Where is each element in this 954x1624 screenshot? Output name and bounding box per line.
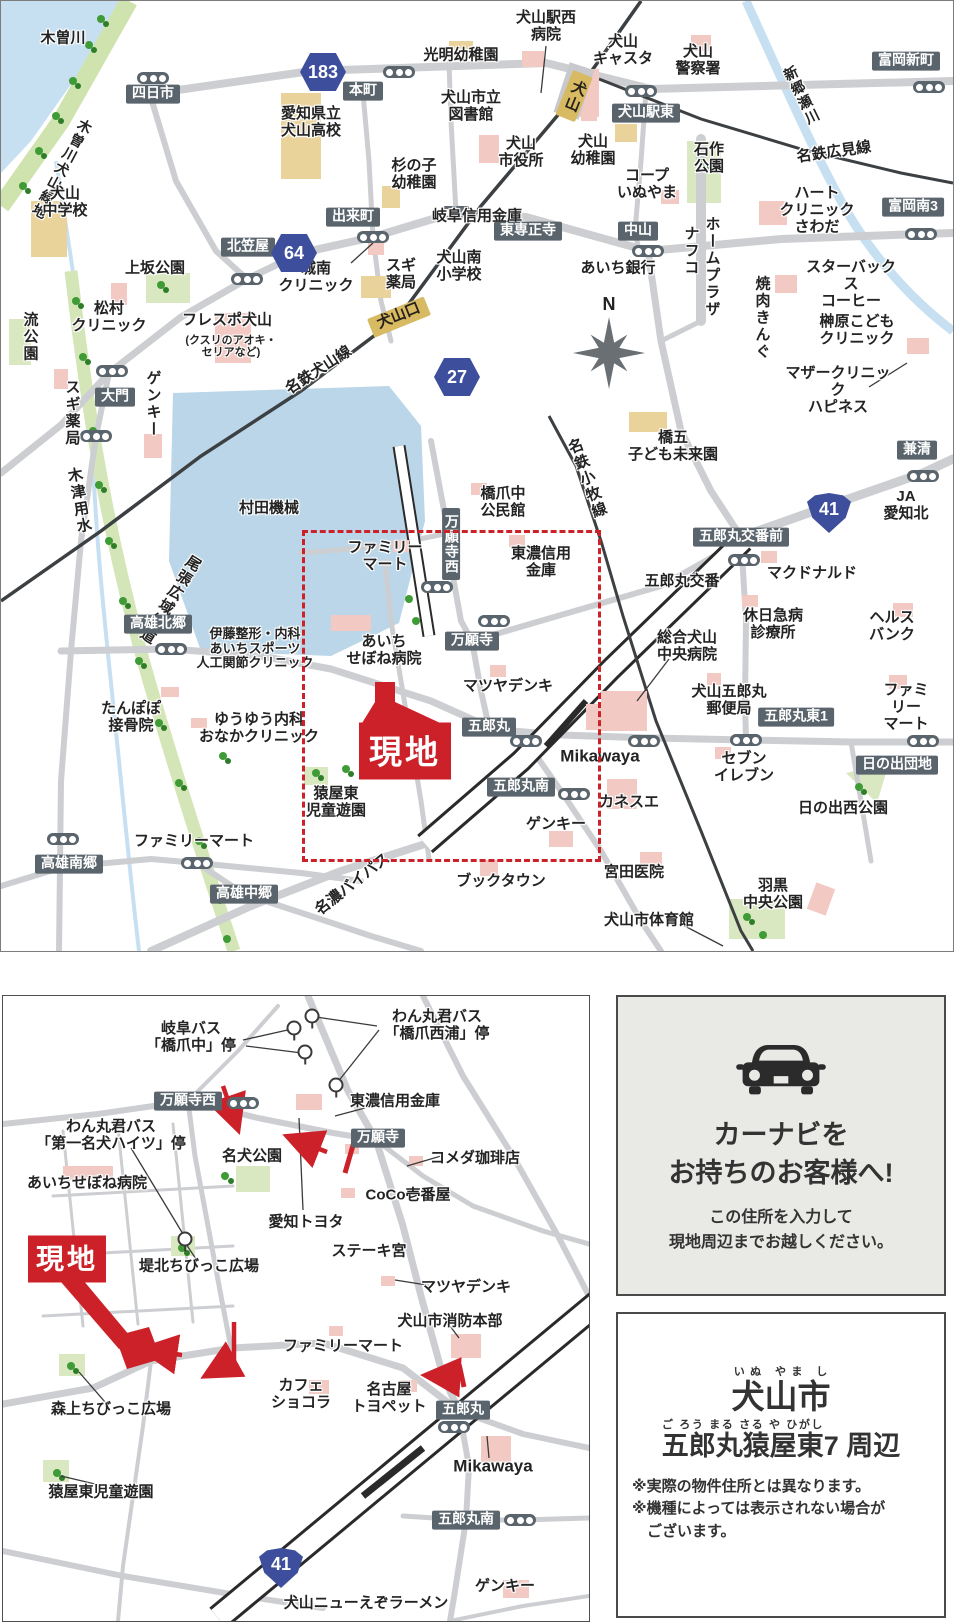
place-label: 焼肉きんぐ xyxy=(753,276,770,361)
station-label: 万願寺 xyxy=(351,1129,405,1148)
station-label: 高雄北郷 xyxy=(124,615,192,634)
station-label: 犬山駅東 xyxy=(612,104,680,123)
place-label: スギ薬局 xyxy=(63,379,80,447)
station-label: 東専正寺 xyxy=(494,222,562,241)
traffic-signal-icon xyxy=(155,643,187,655)
place-label: 犬山市体育館 xyxy=(604,913,694,930)
place-label: 東濃信用金庫 xyxy=(350,1094,440,1111)
place-label: ホームプラザ xyxy=(703,216,720,318)
place-label: スギ 薬局 xyxy=(386,258,416,292)
compass-icon xyxy=(572,316,646,390)
station-label: 高雄南郷 xyxy=(35,855,103,874)
place-label: 名犬公園 xyxy=(222,1149,282,1166)
station-label: 五郎丸 xyxy=(436,1401,490,1420)
traffic-signal-icon xyxy=(438,1421,470,1433)
station-label: 万願寺西 xyxy=(154,1092,222,1111)
station-label: 本町 xyxy=(343,82,383,101)
place-label: 森上ちびっこ広場 xyxy=(51,1402,171,1419)
place-label: CoCo壱番屋 xyxy=(366,1188,451,1205)
place-label: 日の出西公園 xyxy=(798,801,888,818)
place-label: 犬山 幼稚園 xyxy=(570,134,615,168)
car-panel-subtitle: この住所を入力して 現地周辺までお越しください。 xyxy=(669,1206,893,1256)
place-label: 名古屋 トヨペット xyxy=(351,1382,426,1416)
station-label: 富岡南3 xyxy=(882,198,944,217)
traffic-signal-icon xyxy=(80,430,112,442)
place-label: 猿屋東児童遊園 xyxy=(48,1485,153,1502)
place-label: あいち銀行 xyxy=(580,261,655,278)
station-label: 富岡新町 xyxy=(872,52,940,71)
place-label: わん丸君バス 「第一名犬ハイツ」停 xyxy=(36,1119,186,1153)
traffic-signal-icon xyxy=(227,1097,259,1109)
place-label: 松村 クリニック xyxy=(71,301,146,335)
traffic-signal-icon xyxy=(907,735,939,747)
traffic-signal-icon xyxy=(730,734,762,746)
place-label: スターバックス コーヒー xyxy=(800,260,902,311)
place-label: 犬山五郎丸 郵便局 xyxy=(691,684,766,718)
traffic-signal-icon xyxy=(383,66,415,78)
place-label: 光明幼稚園 xyxy=(423,48,498,65)
place-label: ゲンキー xyxy=(475,1579,535,1596)
place-label: 愛知トヨタ xyxy=(268,1215,343,1232)
place-label: 石作 公園 xyxy=(694,142,724,176)
place-label: ヘルス バンク xyxy=(869,610,915,644)
traffic-signal-icon xyxy=(905,228,937,240)
place-label: 犬山 警察署 xyxy=(675,44,720,78)
place-label: 木曽川 xyxy=(40,31,85,48)
place-label: 伊藤整形・内科 あいちスポーツ 人工関節クリニック xyxy=(196,627,313,671)
place-label: セブン イレブン xyxy=(714,751,774,785)
location-map-page: { "site_label": "現地", "compass_letter": … xyxy=(0,0,954,1624)
place-label: ゲンキー xyxy=(144,370,161,438)
traffic-signal-icon xyxy=(96,365,128,377)
place-label: 犬山市消防本部 xyxy=(397,1314,502,1331)
navi-address-panel: 犬山市いぬ やま し 五郎丸猿屋東ご ろう まる さる や ひがし7 周辺 ※実… xyxy=(616,1312,946,1618)
place-label: 犬山ニューえぞラーメン xyxy=(284,1596,448,1613)
place-label: 犬山 キャスタ xyxy=(593,34,653,68)
place-label: コープ いぬやま xyxy=(617,168,677,202)
place-label: 上坂公園 xyxy=(125,261,185,278)
bus-stop-icon xyxy=(329,1078,344,1093)
bus-stop-icon xyxy=(298,1045,313,1060)
station-label: 兼清 xyxy=(897,441,937,460)
place-label: 犬山南 小学校 xyxy=(436,250,481,284)
place-label: マクドナルド xyxy=(767,566,857,583)
traffic-signal-icon xyxy=(181,857,213,869)
place-label: コメダ珈琲店 xyxy=(430,1151,520,1168)
place-label: カネスエ xyxy=(599,795,659,812)
place-label: フレスポ犬山 xyxy=(182,313,272,330)
place-label: ハート クリニック さわだ xyxy=(779,186,854,237)
detail-map-graphics xyxy=(3,996,589,1621)
car-navi-panel: カーナビを お持ちのお客様へ! この住所を入力して 現地周辺までお越しください。 xyxy=(616,995,946,1296)
car-panel-title: カーナビを お持ちのお客様へ! xyxy=(669,1117,894,1193)
place-label: 愛知県立 犬山高校 xyxy=(281,106,341,140)
traffic-signal-icon xyxy=(137,72,169,84)
station-label: 五郎丸南 xyxy=(432,1511,500,1530)
traffic-signal-icon xyxy=(625,85,657,97)
place-label: マツヤデンキ xyxy=(421,1280,511,1297)
place-label: マザークリニック ハピネス xyxy=(781,366,896,417)
place-label: JA 愛知北 xyxy=(883,489,928,523)
station-label: 出来町 xyxy=(326,208,380,227)
traffic-signal-icon xyxy=(504,1514,536,1526)
place-label: ファミリーマート xyxy=(134,834,254,851)
traffic-signal-icon xyxy=(728,554,760,566)
place-label: 流公園 xyxy=(21,312,38,363)
traffic-signal-icon xyxy=(357,231,389,243)
car-icon xyxy=(735,1035,827,1099)
traffic-signal-icon xyxy=(231,273,263,285)
place-label: 橋爪中 公民館 xyxy=(480,486,525,520)
place-label: (クスリのアオキ・ セリアなど) xyxy=(185,335,276,360)
traffic-signal-icon xyxy=(628,735,660,747)
station-label: 五郎丸東1 xyxy=(758,708,834,727)
site-marker: 現地 xyxy=(28,1236,106,1283)
traffic-signal-icon xyxy=(47,833,79,845)
place-label: 岐阜バス 「橋爪中」停 xyxy=(146,1021,236,1055)
place-label: 宮田医院 xyxy=(604,865,664,882)
station-label: 大門 xyxy=(95,388,135,407)
place-label: ゆうゆう内科 おなかクリニック xyxy=(199,712,319,746)
place-label: ナフコ xyxy=(682,226,699,277)
place-label: わん丸君バス 「橋爪西浦」停 xyxy=(384,1009,489,1043)
place-label: カフェ ショコラ xyxy=(271,1378,331,1412)
station-label: 北笠屋 xyxy=(221,238,275,257)
place-label: 橋五 子ども未来園 xyxy=(628,430,718,464)
place-label: 犬山市立 図書館 xyxy=(441,90,501,124)
place-label: Mikawaya xyxy=(453,1456,532,1475)
place-label: 五郎丸交番 xyxy=(644,574,719,591)
wide-area-map: 現地 木曽川木曽川犬山緑地犬山 中学校四日市本町光明幼稚園愛知県立 犬山高校犬山… xyxy=(0,0,954,952)
address-area: 五郎丸猿屋東ご ろう まる さる や ひがし7 周辺 xyxy=(618,1419,944,1462)
place-label: あいちせぼね病院 xyxy=(27,1176,147,1193)
station-label: 中山 xyxy=(618,222,658,241)
place-label: 杉の子 幼稚園 xyxy=(391,158,436,192)
bus-stop-icon xyxy=(178,1232,193,1247)
place-label: 堤北ちびっこ広場 xyxy=(139,1259,259,1276)
place-label: ファミリー マート xyxy=(883,683,930,734)
place-label: 羽黒 中央公園 xyxy=(743,878,803,912)
place-label: 榊原こども クリニック xyxy=(819,314,894,348)
detail-area-outline xyxy=(302,530,601,862)
address-notes: ※実際の物件住所とは異なります。 ※機種によっては表示されない場合が ございます… xyxy=(632,1476,930,1544)
place-label: 犬山駅西 病院 xyxy=(516,10,576,44)
place-label: ブックタウン xyxy=(456,874,545,891)
station-label: 日の出団地 xyxy=(856,756,938,775)
place-label: たんぽぽ 接骨院 xyxy=(101,701,161,735)
place-label: 休日急病 診療所 xyxy=(743,608,803,642)
traffic-signal-icon xyxy=(907,470,939,482)
traffic-signal-icon xyxy=(632,245,664,257)
station-label: 高雄中郷 xyxy=(210,885,278,904)
address-city: 犬山市いぬ やま し xyxy=(618,1366,944,1415)
bus-stop-icon xyxy=(305,1009,320,1024)
place-label: 犬山 市役所 xyxy=(498,136,543,170)
site-marker: 現地 xyxy=(359,723,451,780)
station-label: 四日市 xyxy=(126,85,180,104)
place-label: 総合犬山 中央病院 xyxy=(657,630,717,664)
bus-stop-icon xyxy=(287,1021,302,1036)
place-label: 犬山 中学校 xyxy=(42,186,87,220)
place-label: ファミリーマート xyxy=(283,1339,403,1356)
place-label: 村田機械 xyxy=(239,501,299,518)
traffic-signal-icon xyxy=(913,81,945,93)
place-label: ステーキ宮 xyxy=(331,1244,406,1261)
detail-map: 現地 岐阜バス 「橋爪中」停わん丸君バス 「橋爪西浦」停万願寺西東濃信用金庫わん… xyxy=(2,995,590,1622)
compass-north-label: N xyxy=(603,294,616,314)
station-label: 五郎丸交番前 xyxy=(693,528,789,547)
